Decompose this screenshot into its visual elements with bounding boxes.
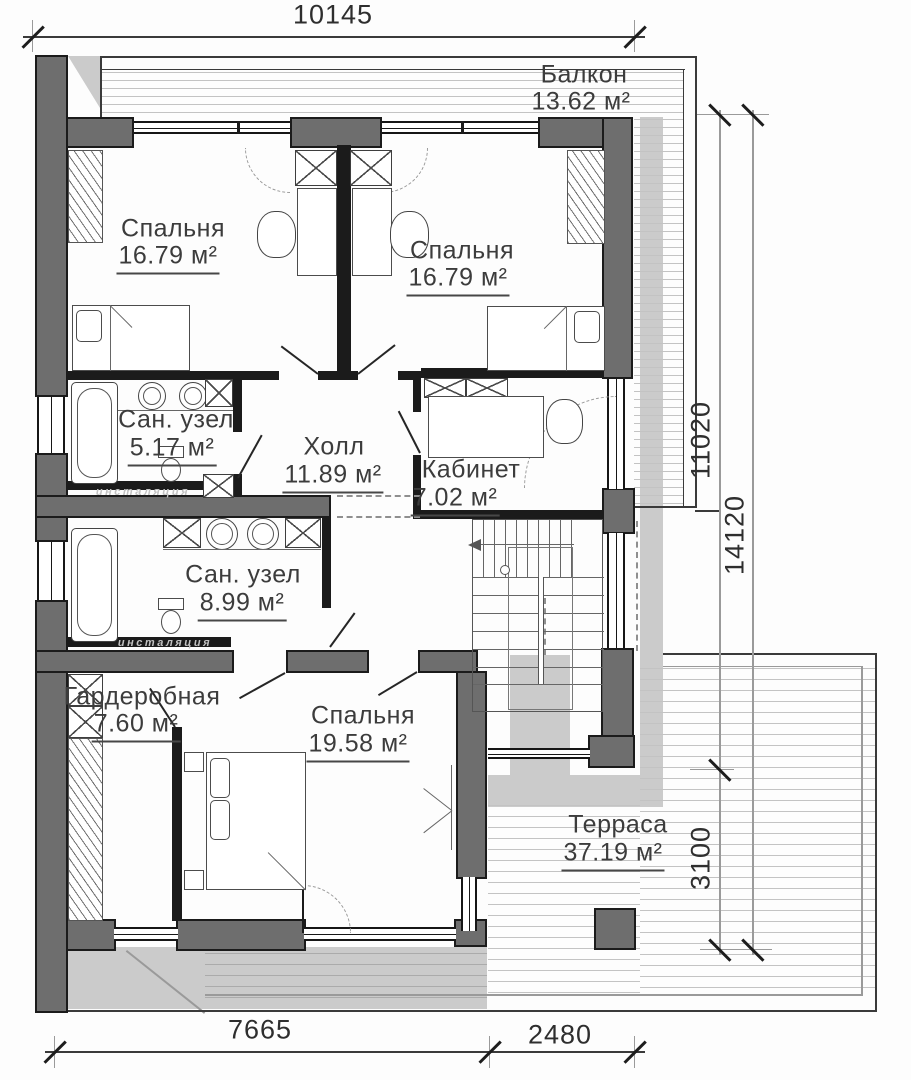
- duct-shaft: [203, 474, 234, 498]
- dim-top-value: 10145: [293, 0, 373, 31]
- wall-right-c: [601, 648, 634, 738]
- chair: [257, 211, 296, 258]
- window-stairs: [607, 533, 625, 648]
- terrace-edge-top-inner: [663, 666, 862, 667]
- window-mullion-1: [237, 121, 240, 134]
- terrace-edge-right: [875, 653, 877, 1012]
- balcony-corner-stub: [695, 510, 721, 512]
- wall-right-b: [602, 488, 635, 534]
- balcony-edge-top: [100, 56, 697, 58]
- room-name-su2: Сан. узел: [185, 561, 301, 590]
- room-area-balcony: 13.62 м²: [529, 88, 632, 119]
- sink: [206, 518, 238, 550]
- door-lower-hall: [239, 672, 285, 699]
- wall-hall-top-b: [318, 371, 358, 380]
- stair-walkline-dot: [500, 565, 510, 575]
- room-name-bedroom1: Спальня: [121, 215, 225, 244]
- wall-su2-east: [322, 518, 331, 608]
- duct-shaft: [163, 518, 201, 548]
- room-area-terrace: 37.19 м²: [561, 839, 664, 872]
- window-mullion-2: [461, 121, 464, 134]
- terrace-door-swing: [303, 885, 351, 933]
- terrace-deck-east: [640, 668, 875, 995]
- room-area-bedroom1: 16.79 м²: [116, 242, 219, 275]
- stair-tread: [483, 520, 484, 577]
- wall-low-band-a: [35, 650, 234, 673]
- dim-line-right-b: [752, 110, 754, 955]
- door-bedroom1: [281, 346, 319, 375]
- floor-plan: инсталяция инсталяция Балкон 13.62 м² Сп…: [0, 0, 911, 1080]
- window-su1: [37, 397, 65, 453]
- wall-su1-east-a: [233, 379, 242, 432]
- closet: [68, 150, 103, 243]
- dim-bottom-right-value: 2480: [528, 1020, 592, 1051]
- pillow: [76, 310, 102, 342]
- room-name-su1: Сан. узел: [118, 406, 234, 435]
- dim-guide: [690, 769, 734, 770]
- window-su2: [37, 542, 65, 600]
- stair-tread: [494, 520, 495, 577]
- wall-hall-top-a: [66, 371, 279, 380]
- door-corridor: [378, 671, 418, 696]
- room-area-su2: 8.99 м²: [198, 589, 287, 622]
- balcony-door-swing-1: [245, 148, 290, 193]
- wall-bottom-b: [176, 919, 306, 951]
- dim-line-top: [23, 36, 645, 38]
- window-gard-bottom: [114, 927, 178, 941]
- bathtub: [71, 528, 118, 642]
- balcony-deck-right: [634, 119, 683, 508]
- duct-shaft: [285, 518, 321, 548]
- wall-bedroom-divider: [337, 145, 351, 379]
- bathtub: [71, 382, 118, 484]
- dim-right-lower-value: 3100: [686, 826, 717, 890]
- wall-right-d: [588, 735, 635, 768]
- terrace-edge-top: [663, 653, 877, 655]
- toilet-bowl: [161, 610, 181, 634]
- balcony-edge-left: [100, 56, 102, 117]
- toilet-tank: [158, 598, 184, 610]
- room-area-bedroom3: 19.58 м²: [306, 730, 409, 763]
- window-bed3-east: [461, 877, 477, 931]
- counter-edge: [163, 549, 321, 550]
- bed3-window-casement-1: [423, 788, 452, 811]
- door-su2: [329, 612, 355, 647]
- wall-mid-band: [35, 495, 331, 518]
- shelf: [424, 378, 466, 398]
- room-name-bedroom2: Спальня: [410, 237, 514, 266]
- bed3-window-casement-2: [423, 810, 452, 833]
- window-bedroom2: [382, 121, 538, 134]
- installation-label-1: инсталяция: [96, 486, 190, 498]
- pillow: [574, 311, 600, 343]
- door-kabinet: [398, 411, 421, 454]
- wardrobe: [295, 150, 337, 186]
- wall-top-a: [66, 117, 134, 148]
- installation-label-2: инсталяция: [118, 637, 212, 649]
- terrace-edge-bottom-inner: [205, 994, 862, 996]
- nightstand: [184, 870, 204, 890]
- stair-walkline-rect: [508, 547, 573, 710]
- wall-right-a: [602, 117, 633, 379]
- door-su1: [237, 435, 263, 479]
- window-landing: [488, 748, 590, 759]
- door-bedroom2: [357, 344, 395, 375]
- stair-walkline: [478, 544, 574, 545]
- dim-guide: [697, 114, 769, 115]
- wall-top-b: [290, 117, 382, 148]
- terrace-edge-right-inner: [861, 666, 863, 996]
- room-area-garderob: 7.60 м²: [92, 710, 181, 743]
- terrace-dashed-edge: [636, 521, 638, 651]
- dim-right-full-value: 14120: [720, 495, 751, 575]
- blanket-line: [566, 306, 567, 371]
- shelving: [68, 738, 103, 921]
- wall-low-band-c: [418, 650, 478, 673]
- terrace-column: [594, 908, 636, 950]
- desk: [297, 188, 337, 276]
- shelf: [466, 378, 508, 398]
- window-bedroom1: [134, 121, 290, 134]
- dim-guide: [700, 949, 772, 950]
- room-name-balcony: Балкон: [541, 61, 628, 90]
- terrace-deck-strip: [205, 953, 487, 1008]
- wardrobe-hatched: [567, 150, 605, 244]
- hall-opening-dashed-1: [337, 495, 420, 497]
- dim-bottom-left-value: 7665: [228, 1015, 292, 1046]
- wall-gard-east: [172, 727, 182, 921]
- wall-bottom-a: [66, 919, 116, 951]
- wall-kabinet-west-a: [413, 378, 421, 412]
- wardrobe: [350, 150, 392, 186]
- pillow: [210, 800, 230, 840]
- dim-right-upper-value: 11020: [686, 401, 717, 479]
- room-name-kabinet: Кабинет: [422, 456, 521, 485]
- chair: [546, 399, 583, 444]
- room-name-garderob: Гардеробная: [64, 683, 221, 712]
- balcony-corner-shadow: [68, 56, 100, 108]
- balcony-rail-inner: [683, 69, 684, 508]
- wall-left-a: [35, 55, 68, 397]
- pillow: [210, 758, 230, 798]
- hall-opening-dashed-2: [337, 516, 420, 518]
- stair-direction-arrow: [468, 539, 481, 551]
- blanket-line: [110, 305, 111, 371]
- wall-low-band-b: [286, 650, 369, 673]
- nightstand: [184, 752, 204, 772]
- terrace-edge-bottom: [35, 1010, 877, 1012]
- sink: [247, 518, 279, 550]
- dim-line-bottom: [45, 1051, 645, 1053]
- terrace-north-shadow: [488, 775, 663, 807]
- desk: [428, 396, 544, 458]
- balcony-edge-bottom: [633, 506, 697, 508]
- room-area-hall: 11.89 м²: [282, 461, 383, 494]
- room-name-bedroom3: Спальня: [311, 702, 415, 731]
- room-area-kabinet: 7.02 м²: [411, 484, 500, 517]
- room-area-su1: 5.17 м²: [128, 434, 217, 467]
- room-name-terrace: Терраса: [568, 811, 667, 840]
- room-name-hall: Холл: [304, 433, 365, 462]
- window-bed3-face: [451, 765, 452, 850]
- duct-shaft: [205, 379, 233, 407]
- room-area-bedroom2: 16.79 м²: [406, 264, 509, 297]
- desk: [352, 188, 392, 276]
